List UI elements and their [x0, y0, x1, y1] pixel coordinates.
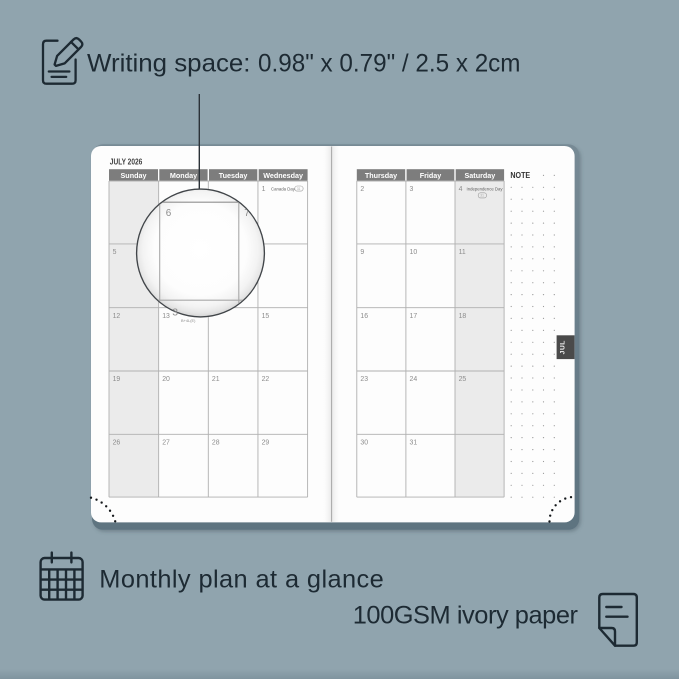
svg-text:20: 20 [162, 376, 170, 383]
svg-text:9: 9 [360, 249, 364, 256]
svg-text:31: 31 [480, 194, 484, 198]
svg-text:15: 15 [262, 313, 270, 320]
svg-text:100GSM ivory paper: 100GSM ivory paper [353, 601, 579, 629]
svg-text:10: 10 [410, 249, 418, 256]
svg-text:2: 2 [360, 186, 364, 193]
svg-text:5: 5 [113, 249, 117, 256]
svg-text:Saturday: Saturday [465, 171, 496, 180]
svg-text:19: 19 [113, 376, 121, 383]
svg-text:Wednesday: Wednesday [263, 171, 303, 180]
svg-text:Monday: Monday [170, 171, 197, 180]
svg-text:31: 31 [410, 440, 418, 447]
svg-text:Independence Day: Independence Day [467, 187, 504, 192]
svg-text:18: 18 [459, 313, 467, 320]
svg-text:28: 28 [212, 440, 220, 447]
svg-text:3: 3 [410, 186, 414, 193]
svg-text:B+4L(E): B+4L(E) [181, 318, 196, 323]
svg-text:24: 24 [410, 376, 418, 383]
svg-text:22: 22 [262, 376, 270, 383]
svg-text:30: 30 [360, 440, 368, 447]
svg-text:11: 11 [459, 249, 466, 256]
svg-text:Thursday: Thursday [365, 171, 397, 180]
svg-text:Canada Day: Canada Day [271, 187, 296, 192]
svg-text:13: 13 [162, 313, 170, 320]
svg-text:JULY 2026: JULY 2026 [110, 157, 143, 167]
svg-text:12: 12 [113, 313, 121, 320]
svg-text:16: 16 [360, 313, 368, 320]
svg-text:Monthly plan at a glance: Monthly plan at a glance [99, 566, 384, 594]
svg-text:27: 27 [162, 440, 170, 447]
svg-text:JUL: JUL [560, 340, 567, 354]
svg-text:31: 31 [297, 187, 301, 191]
svg-text:NOTE: NOTE [510, 171, 530, 180]
svg-text:Sunday: Sunday [121, 171, 147, 180]
svg-text:1: 1 [262, 186, 266, 193]
svg-text:17: 17 [410, 313, 418, 320]
svg-text:Friday: Friday [420, 171, 442, 180]
svg-text:6: 6 [166, 208, 172, 219]
svg-text:29: 29 [262, 440, 270, 447]
svg-text:21: 21 [212, 376, 220, 383]
svg-text:26: 26 [113, 440, 121, 447]
svg-text:4: 4 [459, 186, 463, 193]
svg-text:Writing space:0.98" x 0.79" /: Writing space:0.98" x 0.79" / 2.5 x 2cm [87, 50, 521, 78]
svg-text:3: 3 [172, 308, 178, 319]
svg-text:Tuesday: Tuesday [219, 171, 248, 180]
svg-text:25: 25 [459, 376, 467, 383]
svg-text:23: 23 [360, 376, 368, 383]
